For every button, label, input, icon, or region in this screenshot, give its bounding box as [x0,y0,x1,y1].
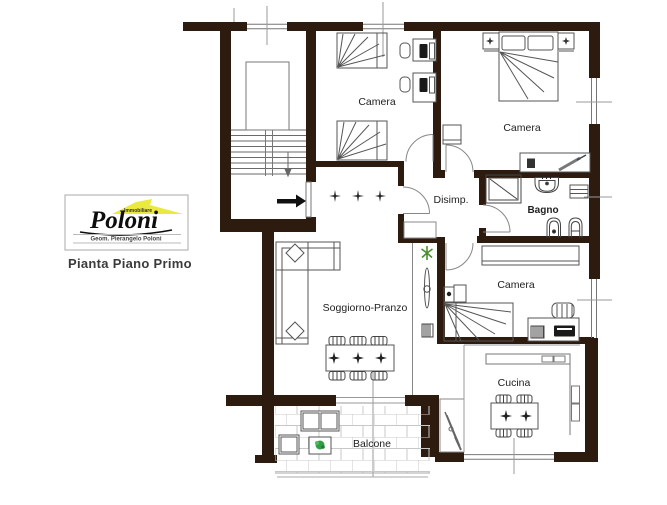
svg-text:Disimp.: Disimp. [433,194,468,206]
svg-text:Camera: Camera [497,279,535,291]
svg-text:Pianta Piano Primo: Pianta Piano Primo [68,256,192,271]
svg-text:Soggiorno-Pranzo: Soggiorno-Pranzo [323,302,408,314]
svg-text:Balcone: Balcone [353,438,391,450]
svg-text:Cucina: Cucina [498,377,531,389]
svg-text:Poloni: Poloni [89,207,158,234]
svg-text:Camera: Camera [503,122,541,134]
svg-text:Bagno: Bagno [527,205,558,216]
svg-text:Camera: Camera [358,96,396,108]
svg-text:Geom. Pierangelo Poloni: Geom. Pierangelo Poloni [90,237,161,243]
